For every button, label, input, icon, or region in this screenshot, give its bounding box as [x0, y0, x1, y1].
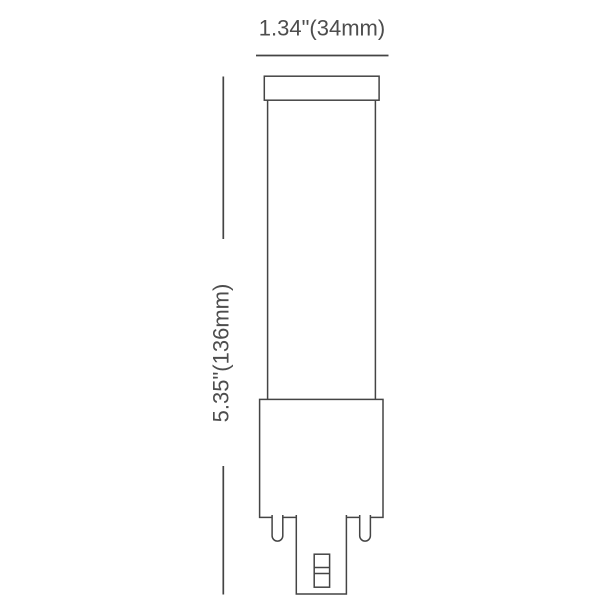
svg-text:1.34"(34mm): 1.34"(34mm) [259, 16, 385, 41]
svg-text:5.35"(136mm): 5.35"(136mm) [209, 284, 234, 423]
